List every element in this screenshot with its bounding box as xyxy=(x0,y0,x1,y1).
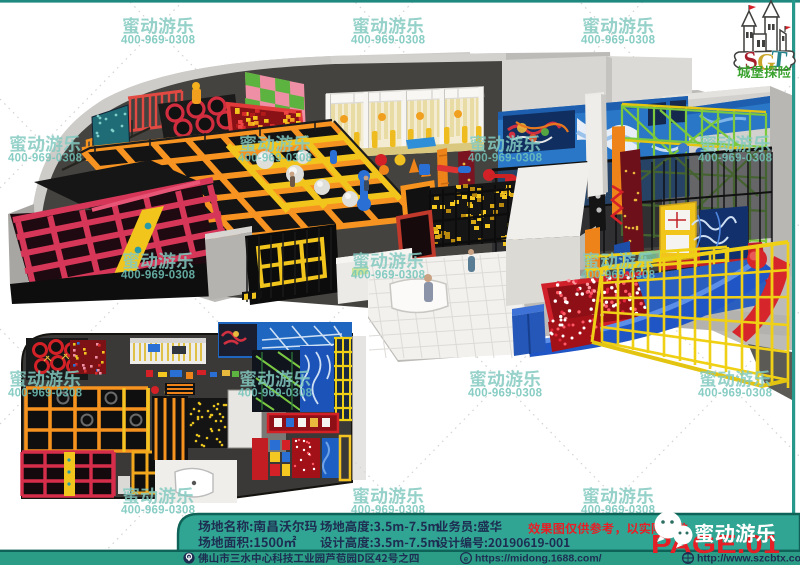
svg-text:400-969-0308: 400-969-0308 xyxy=(581,35,656,47)
svg-text:400-969-0308: 400-969-0308 xyxy=(468,153,543,165)
svg-text:400-969-0308: 400-969-0308 xyxy=(238,388,313,400)
svg-text:400-969-0308: 400-969-0308 xyxy=(351,270,426,282)
svg-text:400-969-0308: 400-969-0308 xyxy=(351,35,426,47)
svg-text:400-969-0308: 400-969-0308 xyxy=(8,153,83,165)
svg-text:400-969-0308: 400-969-0308 xyxy=(698,388,773,400)
svg-text:https://midong.1688.com/: https://midong.1688.com/ xyxy=(475,553,602,565)
svg-text:http://www.szcbtx.com: http://www.szcbtx.com xyxy=(697,553,800,565)
svg-text:400-969-0308: 400-969-0308 xyxy=(121,35,196,47)
svg-text:400-969-0308: 400-969-0308 xyxy=(238,153,313,165)
svg-text:400-969-0308: 400-969-0308 xyxy=(121,505,196,517)
svg-text:400-969-0308: 400-969-0308 xyxy=(8,388,83,400)
svg-text:400-969-0308: 400-969-0308 xyxy=(698,153,773,165)
svg-text:400-969-0308: 400-969-0308 xyxy=(468,388,543,400)
svg-text:e: e xyxy=(464,555,469,564)
svg-text:400-969-0308: 400-969-0308 xyxy=(121,270,196,282)
svg-text:400-969-0308: 400-969-0308 xyxy=(581,270,656,282)
